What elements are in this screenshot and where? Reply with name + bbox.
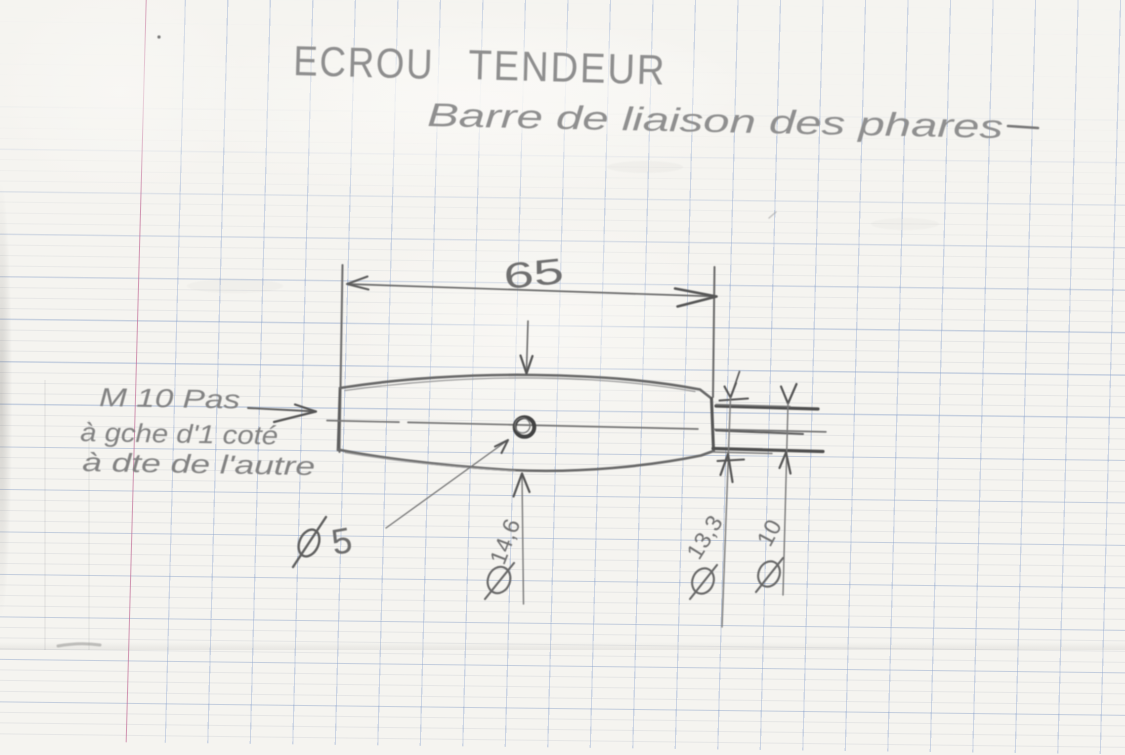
svg-text:Barre de liaison des phares: Barre de liaison des phares: [427, 96, 1004, 145]
svg-text:5: 5: [328, 519, 355, 563]
svg-text:à dte de l'autre: à dte de l'autre: [82, 447, 315, 481]
svg-text:13,3: 13,3: [681, 510, 728, 563]
svg-text:14,6: 14,6: [484, 515, 525, 568]
svg-text:M 10 Pas: M 10 Pas: [99, 382, 241, 414]
svg-text:à gche d'1 coté: à gche d'1 coté: [80, 417, 278, 450]
svg-text:ECROU: ECROU: [293, 37, 435, 88]
svg-text:10: 10: [751, 515, 786, 551]
svg-text:65: 65: [502, 250, 566, 297]
svg-text:TENDEUR: TENDEUR: [468, 41, 667, 94]
